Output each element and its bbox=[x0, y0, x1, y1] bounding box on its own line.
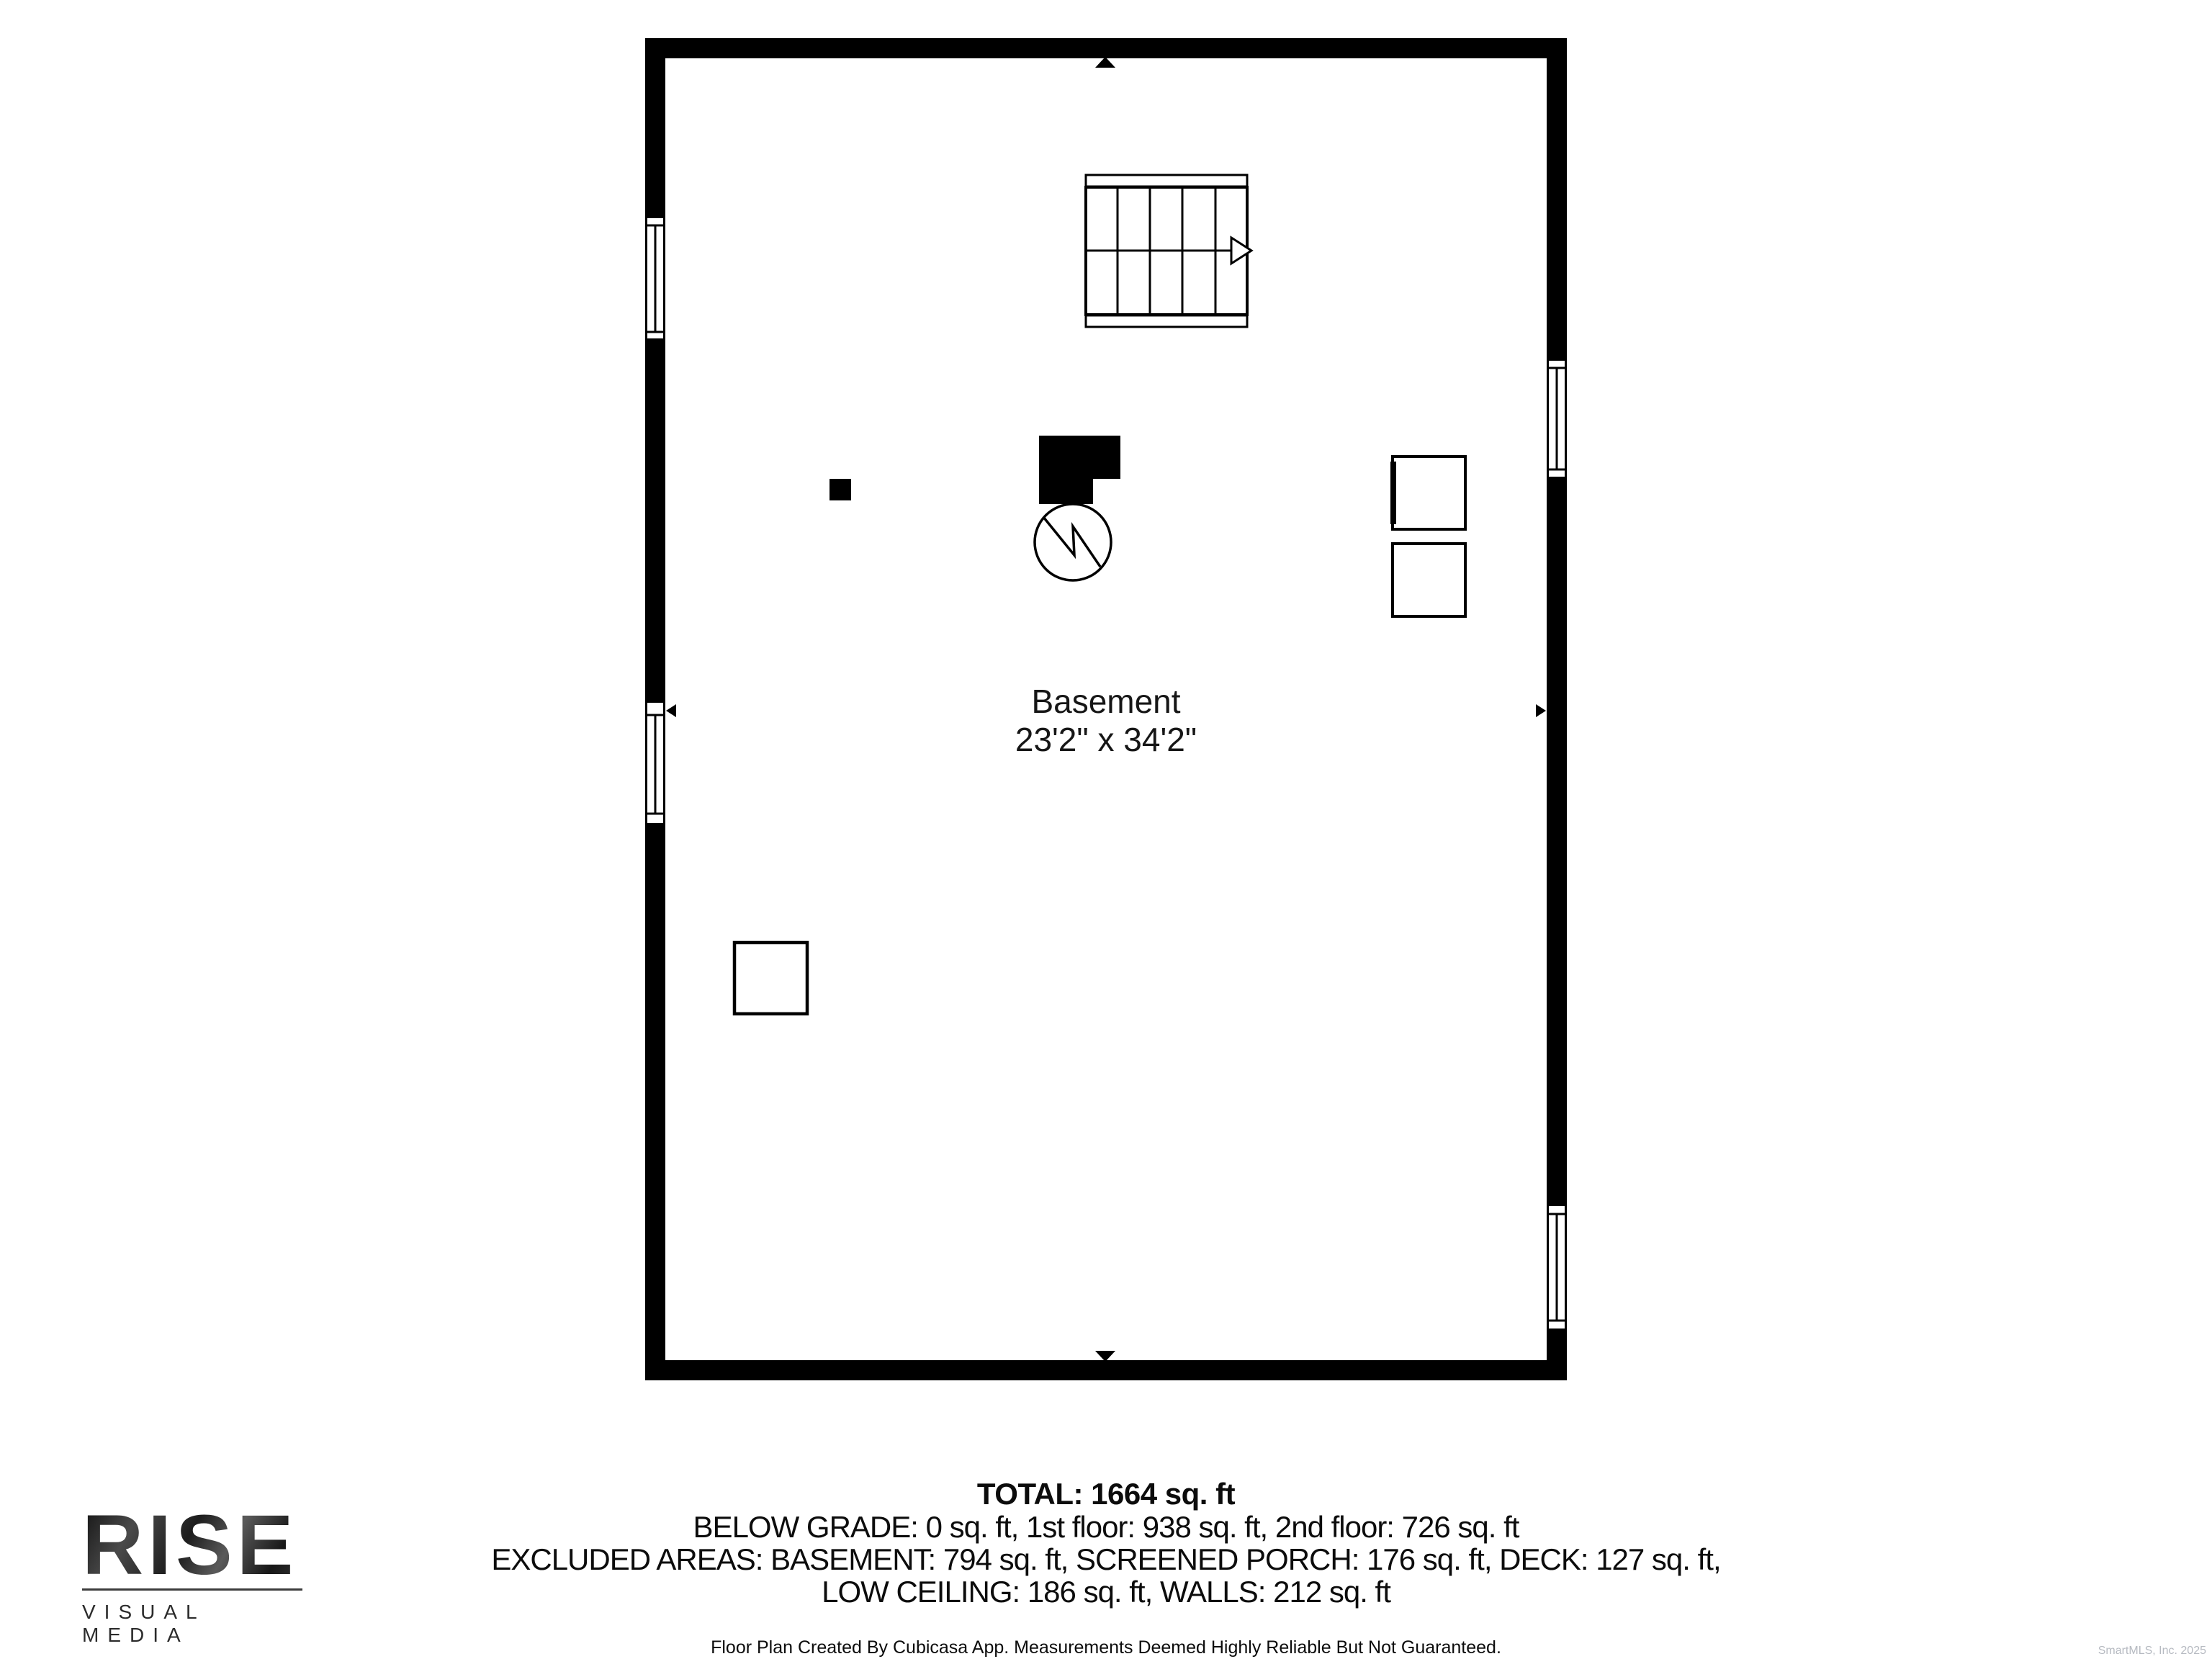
low-ceiling-walls-text: LOW CEILING: 186 sq. ft, WALLS: 212 sq. … bbox=[0, 1575, 2212, 1608]
entry-arrow-right-icon bbox=[1536, 704, 1546, 717]
support-post-symbol bbox=[829, 479, 851, 500]
floorplan-drawing: Basement 23'2" x 34'2" bbox=[0, 0, 2212, 1659]
rise-logo: RISE VISUAL MEDIA bbox=[82, 1509, 313, 1647]
rise-logo-subtitle: VISUAL MEDIA bbox=[82, 1601, 313, 1647]
total-area-text: TOTAL: 1664 sq. ft bbox=[0, 1478, 2212, 1511]
mls-watermark: SmartMLS, Inc. 2025 bbox=[2098, 1645, 2206, 1658]
stairs bbox=[1086, 175, 1251, 327]
appliance-square-left bbox=[734, 943, 807, 1014]
appliance-square-right-bottom bbox=[1393, 544, 1465, 616]
room-dimensions: 23'2" x 34'2" bbox=[1015, 721, 1197, 758]
rise-logo-title: RISE bbox=[82, 1509, 313, 1581]
below-grade-text: BELOW GRADE: 0 sq. ft, 1st floor: 938 sq… bbox=[0, 1511, 2212, 1543]
window-right-top-icon bbox=[1547, 360, 1566, 478]
water-heater-symbol bbox=[1035, 504, 1111, 580]
window-left-middle-icon bbox=[646, 702, 665, 824]
excluded-areas-text: EXCLUDED AREAS: BASEMENT: 794 sq. ft, SC… bbox=[0, 1543, 2212, 1575]
furnace-symbol bbox=[1039, 436, 1120, 504]
window-right-bottom-icon bbox=[1547, 1205, 1566, 1330]
entry-arrow-left-icon bbox=[666, 704, 676, 717]
window-left-top-icon bbox=[646, 217, 665, 340]
appliance-square-right-top bbox=[1393, 457, 1465, 529]
area-summary: TOTAL: 1664 sq. ft BELOW GRADE: 0 sq. ft… bbox=[0, 1478, 2212, 1608]
entry-arrow-bottom-icon bbox=[1095, 1351, 1115, 1362]
entry-arrow-top-icon bbox=[1095, 57, 1115, 68]
room-label: Basement bbox=[1031, 683, 1180, 720]
disclaimer-text: Floor Plan Created By Cubicasa App. Meas… bbox=[0, 1637, 2212, 1658]
